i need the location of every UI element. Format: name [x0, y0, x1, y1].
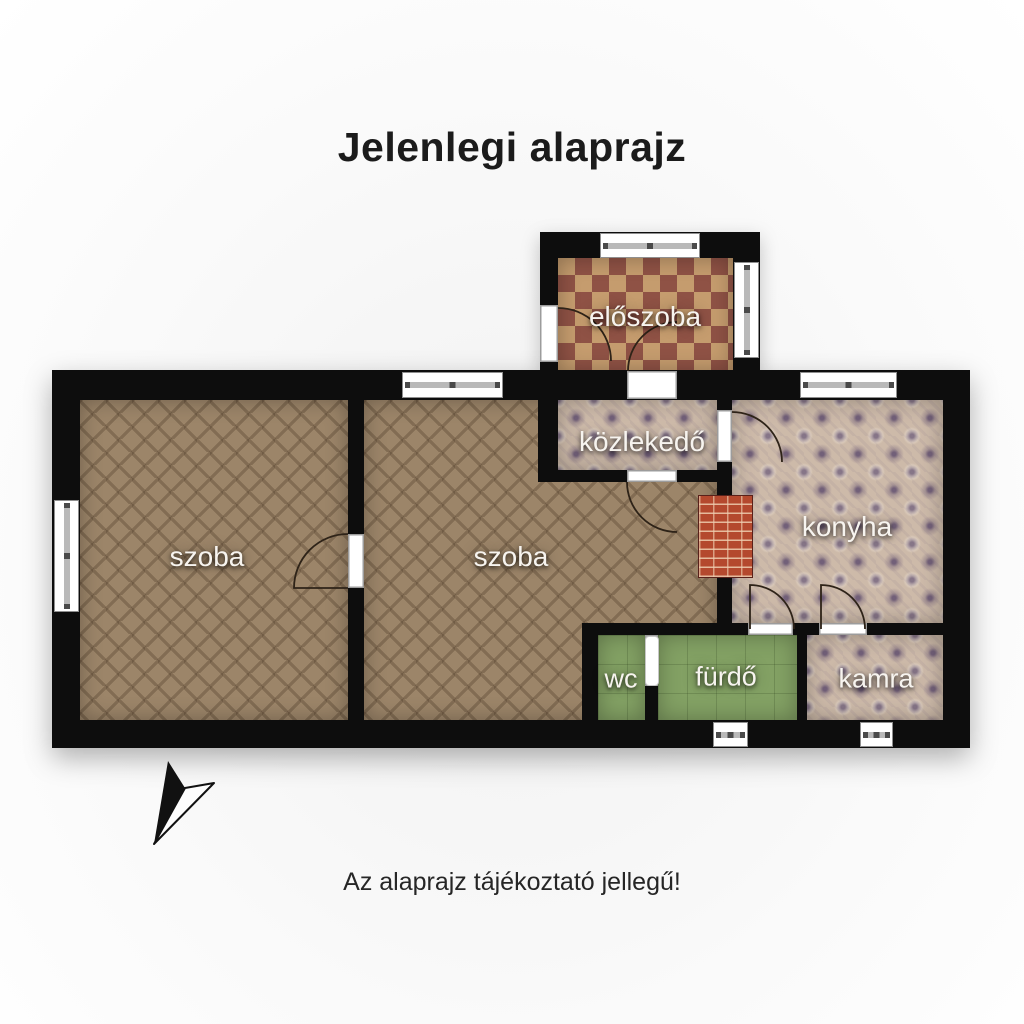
door-opening-konyha-furdo [748, 623, 793, 635]
door-opening-eloszoba-kozlekedo [627, 371, 677, 399]
window-szoba-left-side [54, 500, 79, 612]
room-label-kozlekedo: közlekedő [579, 426, 705, 458]
window-glazing-bar [64, 503, 70, 609]
window-furdo-bottom [713, 722, 748, 747]
page: { "page": { "title": "Jelenlegi alaprajz… [0, 0, 1024, 1024]
window-eloszoba-right [734, 262, 759, 358]
wall-kozlekedo-left [538, 400, 558, 470]
room-label-konyha: konyha [802, 511, 892, 543]
window-konyha-top [800, 372, 897, 398]
door-opening-kozlekedo-konyha [717, 410, 732, 462]
brick-stove [698, 495, 753, 578]
door-opening-szoba-szoba [348, 534, 364, 588]
room-label-wc: wc [605, 664, 638, 695]
wall-furdo-kamra [797, 635, 807, 720]
wc-door-leaf [646, 637, 658, 685]
window-kamra-bottom [860, 722, 893, 747]
wall-wc-left [582, 635, 598, 720]
room-label-kamra: kamra [838, 664, 913, 695]
door-opening-konyha-kamra [819, 623, 867, 635]
room-label-eloszoba: előszoba [589, 301, 701, 333]
disclaimer-text: Az alaprajz tájékoztató jellegű! [0, 868, 1024, 897]
window-glazing-bar [803, 382, 894, 388]
window-glazing-bar [744, 265, 750, 355]
door-opening-entrance [540, 305, 558, 362]
window-glazing-bar [863, 732, 890, 738]
main-wall-right [943, 370, 970, 748]
wall-wc-furdo [645, 686, 658, 720]
window-eloszoba-top [600, 233, 700, 258]
room-label-szoba-left: szoba [170, 541, 245, 573]
room-label-szoba-middle: szoba [474, 541, 549, 573]
window-glazing-bar [405, 382, 500, 388]
window-szoba-middle-top [402, 372, 503, 398]
main-wall-bottom [52, 720, 970, 748]
window-glazing-bar [716, 732, 745, 738]
room-label-furdo: fürdő [695, 662, 757, 693]
north-arrow-icon [140, 752, 230, 852]
door-opening-kozlekedo-szoba [627, 470, 677, 482]
window-glazing-bar [603, 243, 697, 249]
